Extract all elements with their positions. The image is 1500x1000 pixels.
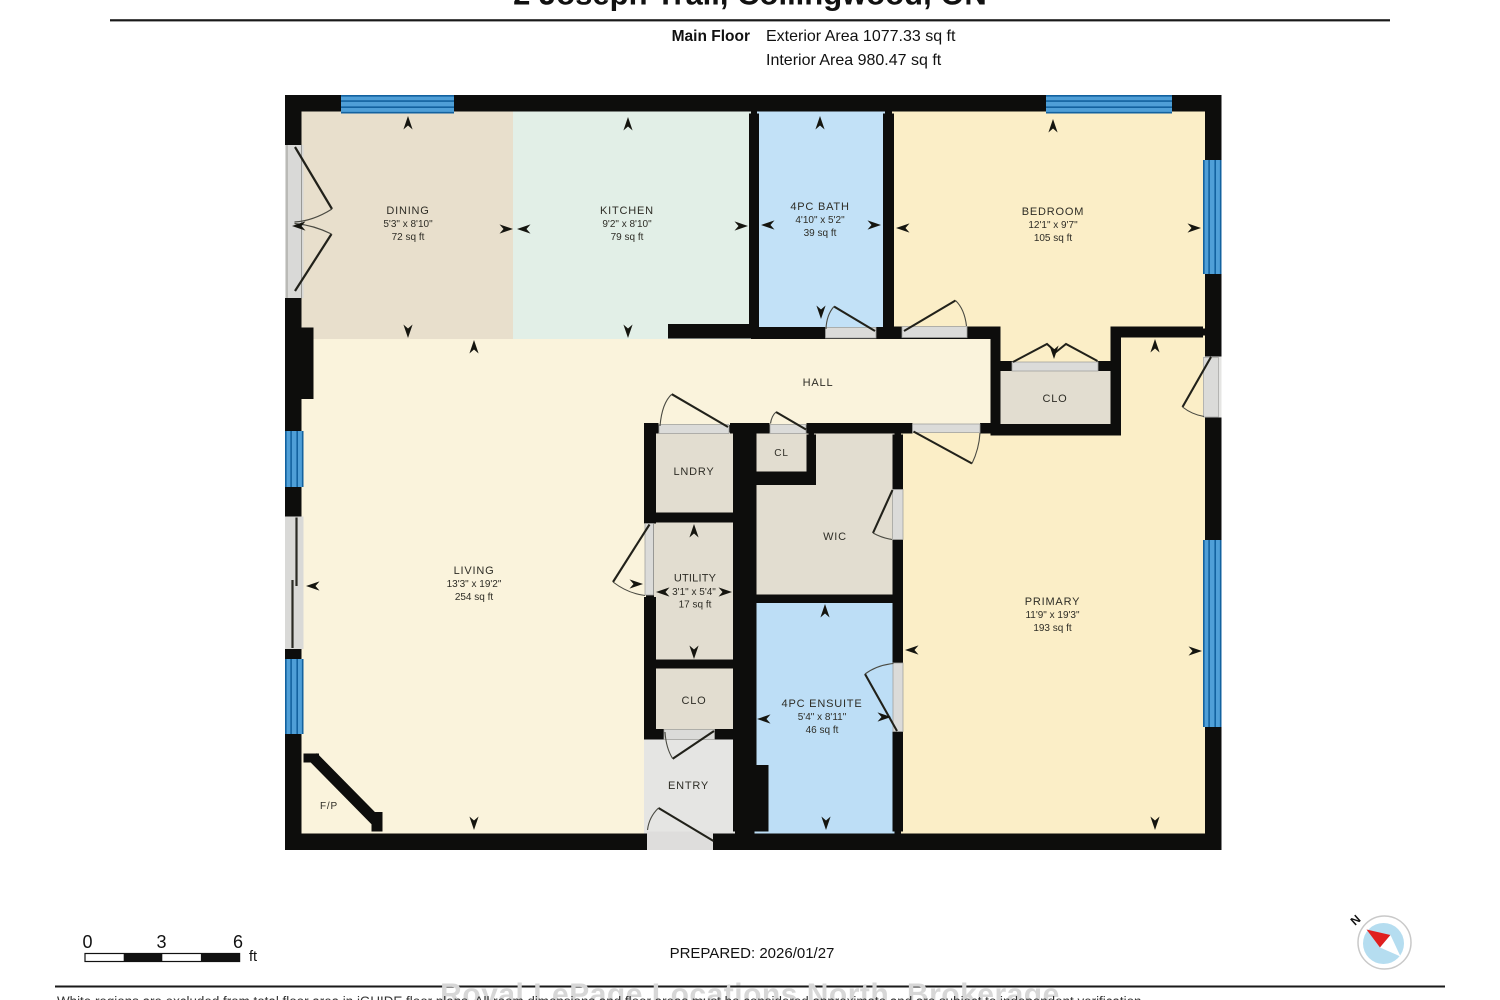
svg-text:4PC ENSUITE: 4PC ENSUITE — [782, 698, 863, 710]
svg-text:LNDRY: LNDRY — [673, 466, 714, 478]
svg-text:Main Floor: Main Floor — [672, 28, 750, 45]
svg-text:Exterior Area 1077.33 sq ft: Exterior Area 1077.33 sq ft — [766, 28, 956, 45]
svg-text:F/P: F/P — [320, 801, 338, 812]
svg-text:CLO: CLO — [1042, 393, 1067, 405]
svg-text:ft: ft — [249, 949, 257, 965]
svg-text:2 Joseph Trail, Collingwood, O: 2 Joseph Trail, Collingwood, ON — [513, 0, 987, 12]
svg-text:HALL: HALL — [803, 377, 834, 389]
svg-text:WIC: WIC — [823, 531, 847, 543]
svg-text:PREPARED: 2026/01/27: PREPARED: 2026/01/27 — [670, 945, 835, 962]
svg-text:4PC BATH: 4PC BATH — [790, 201, 849, 213]
svg-text:105 sq ft: 105 sq ft — [1034, 233, 1073, 244]
svg-text:PRIMARY: PRIMARY — [1025, 596, 1081, 608]
svg-text:Interior Area 980.47 sq ft: Interior Area 980.47 sq ft — [766, 52, 942, 69]
svg-text:254 sq ft: 254 sq ft — [455, 592, 494, 603]
svg-text:DINING: DINING — [386, 205, 429, 217]
svg-text:9'2" x 8'10": 9'2" x 8'10" — [602, 219, 652, 230]
svg-text:5'3" x 8'10": 5'3" x 8'10" — [383, 219, 433, 230]
svg-text:12'1" x 9'7": 12'1" x 9'7" — [1028, 220, 1078, 231]
svg-text:6: 6 — [233, 932, 243, 952]
svg-text:White regions are excluded fro: White regions are excluded from total fl… — [57, 994, 1145, 1000]
svg-text:CLO: CLO — [681, 695, 706, 707]
svg-text:BEDROOM: BEDROOM — [1022, 206, 1084, 218]
svg-text:79 sq ft: 79 sq ft — [611, 232, 644, 243]
svg-text:4'10" x 5'2": 4'10" x 5'2" — [795, 215, 845, 226]
svg-text:39 sq ft: 39 sq ft — [804, 228, 837, 239]
svg-text:ENTRY: ENTRY — [668, 780, 709, 792]
svg-text:CL: CL — [774, 448, 788, 459]
svg-text:UTILITY: UTILITY — [674, 573, 717, 585]
svg-text:193 sq ft: 193 sq ft — [1033, 623, 1072, 634]
svg-text:46 sq ft: 46 sq ft — [806, 725, 839, 736]
svg-text:11'9" x 19'3": 11'9" x 19'3" — [1025, 610, 1080, 621]
svg-text:5'4" x 8'11": 5'4" x 8'11" — [798, 712, 847, 723]
svg-text:LIVING: LIVING — [454, 565, 495, 577]
svg-text:3'1" x 5'4": 3'1" x 5'4" — [672, 587, 716, 598]
svg-text:3: 3 — [156, 932, 166, 952]
svg-text:17 sq ft: 17 sq ft — [679, 600, 712, 611]
svg-text:72 sq ft: 72 sq ft — [392, 232, 425, 243]
svg-text:KITCHEN: KITCHEN — [600, 205, 654, 217]
svg-text:13'3" x 19'2": 13'3" x 19'2" — [447, 579, 502, 590]
svg-text:0: 0 — [82, 932, 92, 952]
